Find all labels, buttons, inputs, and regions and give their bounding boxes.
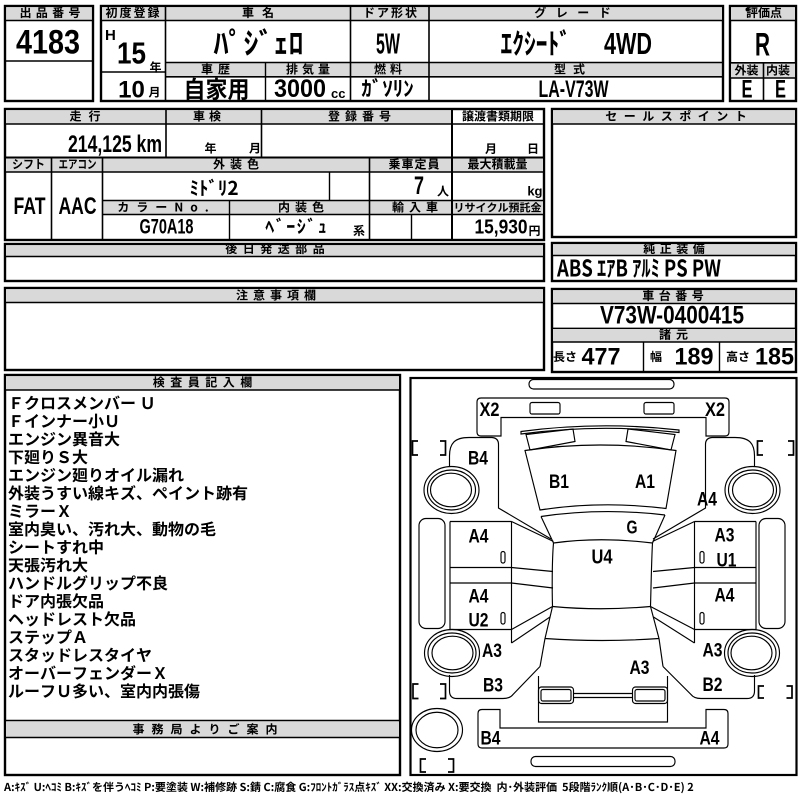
svg-text:A3: A3 <box>715 526 735 547</box>
svg-text:A4: A4 <box>469 527 489 548</box>
svg-text:R: R <box>755 27 770 63</box>
svg-text:5W: 5W <box>376 29 400 61</box>
svg-text:G70A18: G70A18 <box>140 216 194 239</box>
svg-text:A1: A1 <box>635 472 655 493</box>
svg-text:3000: 3000 <box>274 75 326 103</box>
svg-text:U2: U2 <box>469 611 489 632</box>
svg-text:189: 189 <box>675 344 714 371</box>
svg-text:15: 15 <box>117 36 146 71</box>
svg-text:185: 185 <box>755 344 794 371</box>
svg-text:A3: A3 <box>703 641 723 662</box>
svg-text:A4: A4 <box>697 490 717 511</box>
svg-text:B4: B4 <box>468 449 488 470</box>
svg-text:LA-V73W: LA-V73W <box>539 76 609 103</box>
svg-text:B4: B4 <box>481 729 501 750</box>
svg-text:U4: U4 <box>592 547 614 569</box>
svg-text:V73W-0400415: V73W-0400415 <box>600 302 744 330</box>
svg-text:4183: 4183 <box>16 24 80 62</box>
svg-text:X2: X2 <box>480 400 500 421</box>
svg-text:A4: A4 <box>700 729 720 750</box>
svg-text:B1: B1 <box>549 472 569 493</box>
svg-text:B2: B2 <box>703 675 723 696</box>
svg-text:AAC: AAC <box>59 193 97 220</box>
svg-text:U1: U1 <box>717 551 737 572</box>
svg-text:G: G <box>627 518 638 538</box>
svg-text:E: E <box>742 76 753 104</box>
svg-text:X2: X2 <box>705 400 725 421</box>
svg-text:E: E <box>775 76 786 104</box>
svg-text:7: 7 <box>414 172 424 200</box>
svg-text:H: H <box>105 27 116 44</box>
svg-text:A3: A3 <box>630 658 650 679</box>
svg-text:FAT: FAT <box>14 193 46 220</box>
svg-text:10: 10 <box>118 77 145 104</box>
svg-text:A4: A4 <box>469 587 489 608</box>
svg-text:kg: kg <box>527 184 542 199</box>
svg-text:A3: A3 <box>482 641 502 662</box>
svg-text:B3: B3 <box>483 676 503 697</box>
svg-text:cc: cc <box>331 86 345 101</box>
svg-text:15,930: 15,930 <box>475 217 528 239</box>
svg-text:A4: A4 <box>715 586 735 607</box>
svg-text:4WD: 4WD <box>604 26 652 61</box>
svg-text:214,125 km: 214,125 km <box>68 131 162 158</box>
svg-text:477: 477 <box>582 344 621 371</box>
